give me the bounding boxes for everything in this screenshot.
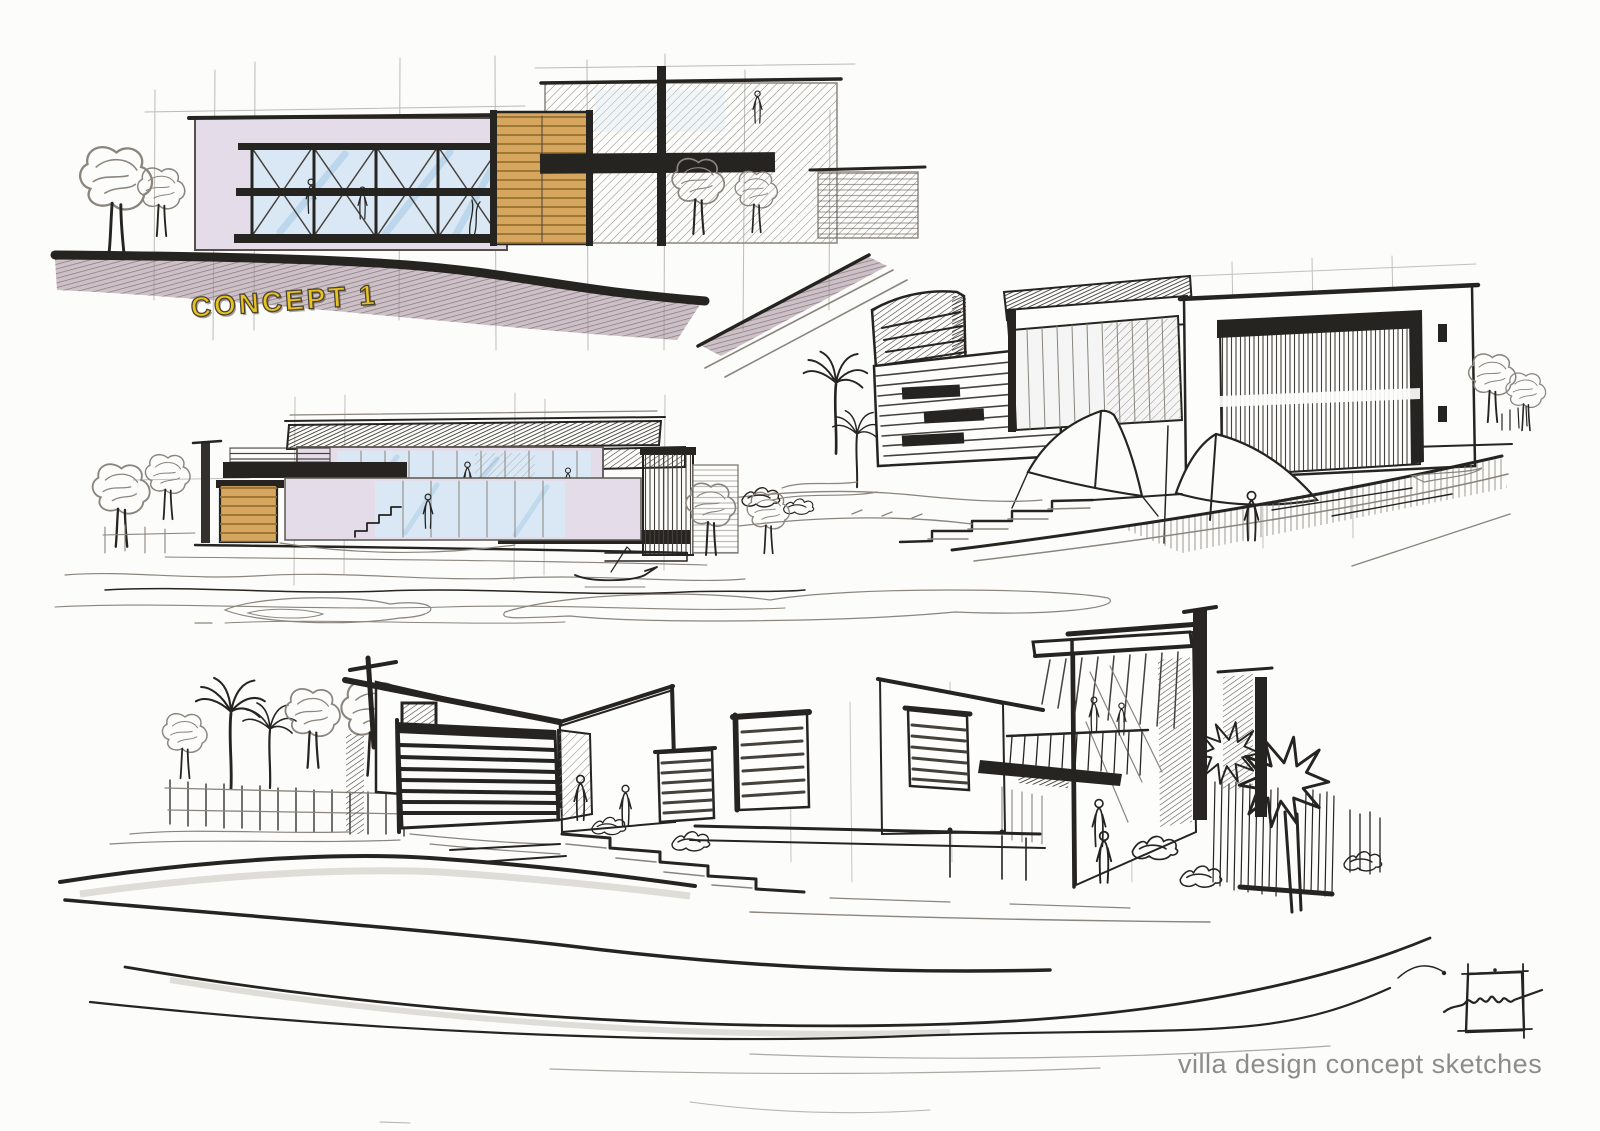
balcony-tower [1033, 607, 1216, 887]
right-low-wing [810, 167, 925, 238]
big-louver-wall [396, 720, 592, 832]
left-trees [80, 147, 185, 251]
wood-garage-door [216, 480, 284, 542]
sketch-sheet: CONCEPT 1 [0, 0, 1600, 1131]
sheet-caption: villa design concept sketches [1178, 1049, 1542, 1080]
lower-level [285, 478, 641, 540]
left-post [193, 441, 221, 543]
sketch-large-perspective [50, 582, 1470, 1127]
terrace-pool-lines [690, 826, 1332, 922]
wood-slat-tower [490, 110, 593, 246]
louver-panel-b [733, 712, 809, 810]
flourish-curve [1398, 966, 1446, 978]
artist-signature-mark [1392, 950, 1562, 1050]
terrace-base [165, 543, 707, 565]
left-palms-and-fence [110, 678, 412, 844]
glass-curtain-wall [234, 143, 526, 243]
right-louver-screen [640, 447, 738, 555]
signature-scribble [1444, 990, 1542, 1012]
louver-panel-c-volume [878, 679, 1043, 844]
ground-sweeps [60, 856, 1430, 1123]
glass-cube [1004, 276, 1192, 432]
cantilever-beam [540, 152, 775, 174]
clouds [195, 590, 1110, 623]
